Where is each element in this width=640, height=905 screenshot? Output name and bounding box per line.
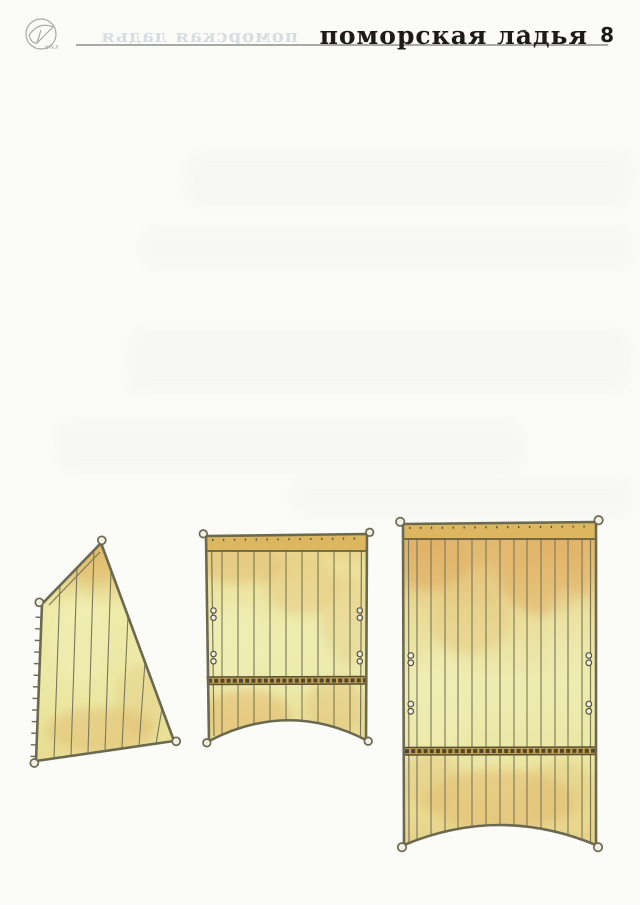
sail-pattern-plate bbox=[0, 0, 640, 905]
corner-ring-icon bbox=[203, 739, 211, 747]
corner-ring-icon bbox=[98, 536, 106, 544]
corner-ring-icon bbox=[30, 759, 38, 767]
corner-ring-icon bbox=[594, 843, 602, 851]
corner-ring-icon bbox=[396, 518, 404, 526]
corner-ring-icon bbox=[366, 529, 374, 537]
corner-ring-icon bbox=[364, 737, 372, 745]
scanned-page: ОРЕЛ поморская ладья поморская ладья 8 bbox=[0, 0, 640, 905]
corner-ring-icon bbox=[594, 516, 602, 524]
corner-ring-icon bbox=[398, 843, 406, 851]
corner-ring-icon bbox=[200, 530, 208, 538]
corner-ring-icon bbox=[35, 598, 43, 606]
sail-piece-medium bbox=[195, 529, 374, 747]
sail-piece-large bbox=[390, 516, 603, 851]
sail-piece-triangular bbox=[30, 536, 180, 767]
corner-ring-icon bbox=[172, 737, 180, 745]
canvas-shading bbox=[195, 547, 370, 740]
canvas-shading bbox=[45, 547, 165, 752]
